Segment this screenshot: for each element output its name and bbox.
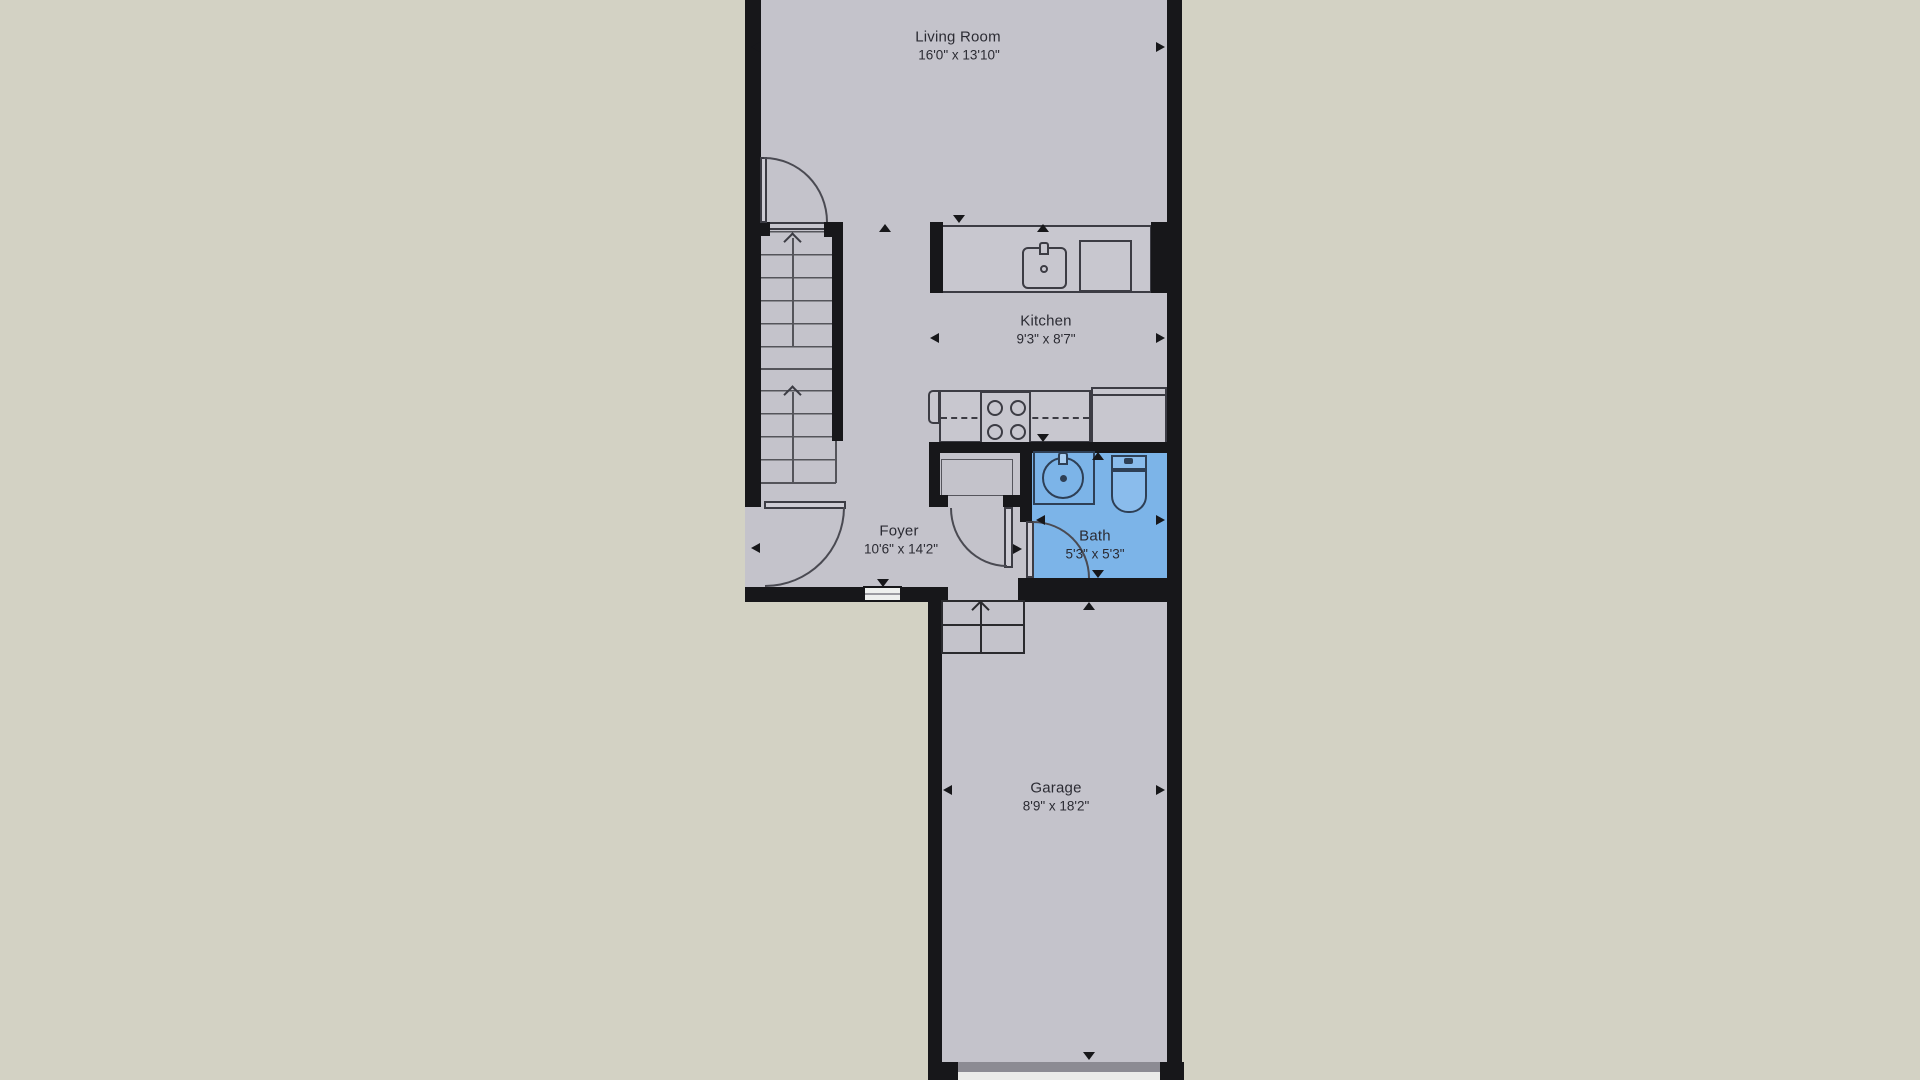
staircase-bottom-edge xyxy=(761,482,836,484)
garage-door xyxy=(958,1062,1160,1072)
wall xyxy=(1151,222,1167,293)
dimension-arrow-down-icon xyxy=(1092,570,1104,578)
room-dims-garage: 8'9" x 18'2" xyxy=(1023,799,1090,814)
stove-burner-icon xyxy=(1010,400,1026,416)
garage-floor-area xyxy=(940,600,1169,1064)
closet xyxy=(941,459,1013,496)
dimension-arrow-up-icon xyxy=(1092,452,1104,460)
kitchen-sink-faucet-icon xyxy=(1039,242,1049,255)
room-label-garage: Garage xyxy=(1030,780,1081,797)
garage-step-line xyxy=(941,624,1025,626)
stove-burner-icon xyxy=(987,400,1003,416)
dimension-arrow-down-icon xyxy=(1083,1052,1095,1060)
toilet-flush-icon xyxy=(1124,458,1133,464)
staircase-right-edge xyxy=(835,441,837,483)
dimension-arrow-right-icon xyxy=(1156,333,1165,343)
wall xyxy=(930,222,943,293)
dimension-arrow-down-icon xyxy=(953,215,965,223)
room-dims-bath: 5'3" x 5'3" xyxy=(1065,547,1124,562)
floor-plan: Living Room 16'0" x 13'10" Kitchen 9'3" … xyxy=(0,0,1920,1080)
wall xyxy=(758,222,770,236)
dimension-arrow-right-icon xyxy=(1156,785,1165,795)
wall xyxy=(1167,0,1182,1080)
dimension-arrow-left-icon xyxy=(751,543,760,553)
wall xyxy=(745,0,761,507)
dimension-arrow-left-icon xyxy=(943,785,952,795)
dimension-arrow-left-icon xyxy=(751,42,760,52)
wall xyxy=(1020,442,1032,522)
room-label-foyer: Foyer xyxy=(879,523,918,540)
dimension-arrow-up-icon xyxy=(1083,602,1095,610)
dimension-arrow-down-icon xyxy=(1037,434,1049,442)
dimension-arrow-right-icon xyxy=(1013,544,1022,554)
wall xyxy=(929,495,948,507)
kitchen-counter-endcap xyxy=(928,390,940,424)
garage-door-track xyxy=(958,1072,1160,1080)
bath-sink-drain-icon xyxy=(1060,475,1067,482)
room-label-bath: Bath xyxy=(1079,528,1111,545)
dimension-arrow-down-icon xyxy=(877,579,889,587)
stove-burner-icon xyxy=(987,424,1003,440)
staircase-direction-line-lower xyxy=(792,392,794,482)
wall xyxy=(928,587,942,1064)
dimension-arrow-up-icon xyxy=(879,224,891,232)
window-pane-line xyxy=(865,593,900,595)
entry-window xyxy=(863,586,902,602)
toilet-bowl xyxy=(1111,470,1147,513)
room-dims-foyer: 10'6" x 14'2" xyxy=(864,542,938,557)
room-label-living-room: Living Room xyxy=(915,29,1001,46)
stove-burner-icon xyxy=(1010,424,1026,440)
dimension-arrow-right-icon xyxy=(1156,515,1165,525)
staircase xyxy=(770,222,824,230)
wall xyxy=(745,587,948,602)
counter-inner-line xyxy=(1093,394,1165,396)
room-label-kitchen: Kitchen xyxy=(1020,313,1071,330)
dimension-arrow-up-icon xyxy=(1037,224,1049,232)
room-dims-living-room: 16'0" x 13'10" xyxy=(918,48,1000,63)
staircase-direction-line-upper xyxy=(792,238,794,347)
wall xyxy=(832,222,843,441)
dimension-arrow-right-icon xyxy=(1156,42,1165,52)
room-dims-kitchen: 9'3" x 8'7" xyxy=(1016,332,1075,347)
kitchen-sink-drain-icon xyxy=(1040,265,1048,273)
wall xyxy=(1018,578,1169,602)
dimension-arrow-left-icon xyxy=(1036,515,1045,525)
dimension-arrow-left-icon xyxy=(930,333,939,343)
bath-faucet-icon xyxy=(1058,452,1068,465)
staircase-landing-line xyxy=(761,368,832,370)
dishwasher xyxy=(1079,240,1132,292)
kitchen-counter-right xyxy=(1091,387,1167,444)
staircase-upper-flight xyxy=(761,231,832,348)
staircase-lower-flight xyxy=(761,390,836,483)
